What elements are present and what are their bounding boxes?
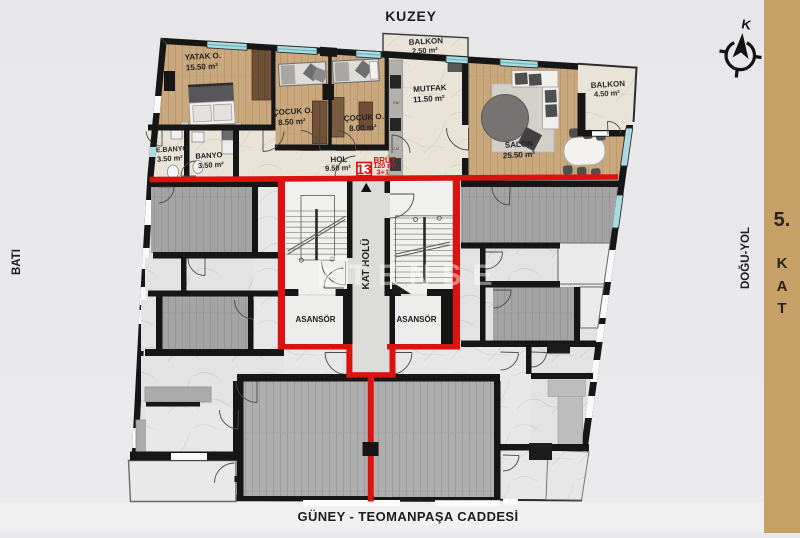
svg-text:15.50 m²: 15.50 m² (186, 62, 219, 73)
svg-text:TENSE: TENSE (348, 259, 503, 292)
svg-text:5.: 5. (774, 209, 791, 231)
svg-text:25.50 m²: 25.50 m² (503, 150, 536, 161)
svg-text:3+1: 3+1 (377, 168, 390, 177)
svg-text:ASANSÖR: ASANSÖR (295, 315, 335, 324)
svg-text:8.50 m²: 8.50 m² (278, 117, 306, 128)
svg-text:T: T (777, 300, 786, 317)
svg-text:9.50 m²: 9.50 m² (325, 163, 352, 173)
svg-text:SALON: SALON (505, 139, 534, 150)
svg-text:13: 13 (356, 162, 372, 177)
svg-text:A: A (777, 278, 788, 295)
svg-text:BATI: BATI (11, 249, 23, 275)
svg-text:8.00 m²: 8.00 m² (349, 123, 377, 134)
svg-text:3.50 m²: 3.50 m² (157, 153, 184, 164)
svg-text:11.50 m²: 11.50 m² (413, 94, 445, 105)
svg-text:CM: CM (393, 146, 399, 151)
svg-text:KUZEY: KUZEY (385, 8, 436, 24)
svg-text:4.50 m²: 4.50 m² (594, 88, 621, 99)
svg-text:3.50 m²: 3.50 m² (198, 160, 225, 171)
svg-text:GÜNEY - TEOMANPAŞA CADDESİ: GÜNEY - TEOMANPAŞA CADDESİ (297, 509, 518, 524)
svg-text:DM: DM (393, 100, 399, 105)
svg-text:ASANSÖR: ASANSÖR (396, 315, 436, 324)
svg-text:K: K (777, 255, 788, 272)
svg-text:MUTFAK: MUTFAK (413, 83, 447, 94)
svg-text:DOĞU-YOL: DOĞU-YOL (739, 227, 752, 289)
